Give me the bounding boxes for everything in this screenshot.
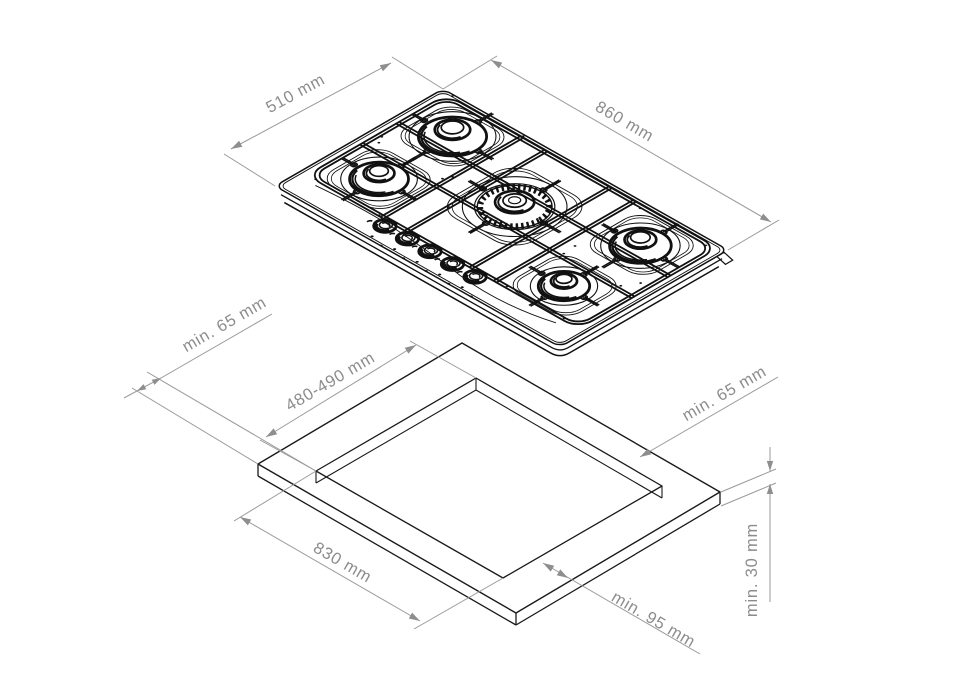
svg-text:510 mm: 510 mm — [263, 70, 328, 117]
svg-text:min. 30 mm: min. 30 mm — [743, 523, 761, 617]
svg-text:min. 65 mm: min. 65 mm — [679, 362, 770, 425]
svg-text:860 mm: 860 mm — [592, 98, 657, 146]
svg-text:480-490 mm: 480-490 mm — [283, 348, 379, 415]
svg-text:min. 95 mm: min. 95 mm — [608, 588, 698, 651]
svg-text:min. 65 mm: min. 65 mm — [179, 293, 270, 356]
